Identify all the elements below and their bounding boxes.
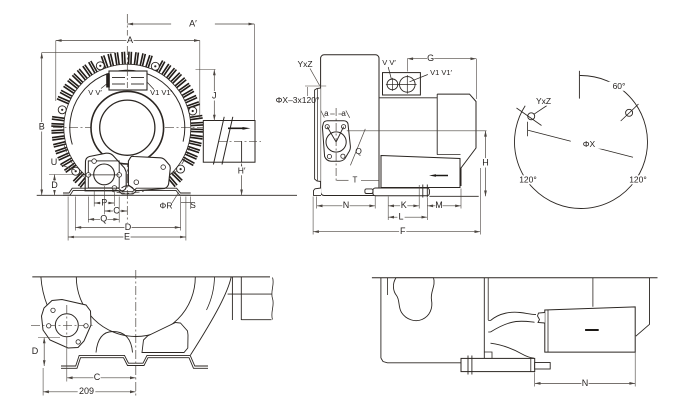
svg-text:U: U — [51, 157, 58, 167]
svg-text:V V′: V V′ — [88, 88, 102, 97]
svg-text:V V′: V V′ — [382, 58, 396, 67]
svg-text:ΦR: ΦR — [160, 201, 173, 211]
svg-text:F: F — [400, 226, 406, 236]
svg-text:H: H — [482, 157, 489, 167]
svg-text:A: A — [127, 35, 133, 45]
svg-text:B: B — [39, 121, 45, 131]
svg-text:120°: 120° — [519, 174, 537, 184]
svg-text:N: N — [582, 378, 589, 388]
svg-text:K: K — [401, 200, 407, 210]
svg-text:209: 209 — [79, 386, 94, 396]
svg-text:a: a — [324, 109, 329, 118]
svg-text:120°: 120° — [629, 174, 647, 184]
svg-text:D: D — [125, 222, 132, 232]
svg-text:S: S — [190, 200, 196, 210]
svg-text:T: T — [353, 175, 358, 184]
svg-text:C: C — [94, 372, 101, 382]
svg-text:ΦX: ΦX — [583, 139, 596, 149]
svg-text:G: G — [427, 53, 434, 63]
svg-text:H′: H′ — [238, 165, 246, 175]
svg-text:N: N — [343, 200, 350, 210]
svg-text:YxZ: YxZ — [297, 59, 312, 69]
svg-text:D: D — [51, 180, 58, 190]
svg-text:L: L — [398, 212, 403, 222]
svg-text:A′: A′ — [189, 18, 197, 28]
svg-text:Q: Q — [355, 146, 362, 156]
svg-text:D: D — [32, 346, 39, 356]
svg-text:M: M — [435, 200, 443, 210]
svg-text:60°: 60° — [613, 81, 626, 91]
svg-text:V1 V1′: V1 V1′ — [150, 88, 172, 97]
svg-text:Q: Q — [100, 214, 107, 224]
svg-text:E: E — [124, 231, 130, 241]
svg-text:ΦX–3x120°: ΦX–3x120° — [276, 95, 320, 105]
svg-text:a: a — [341, 109, 346, 118]
svg-text:V1 V1′: V1 V1′ — [430, 68, 452, 77]
svg-text:J: J — [212, 90, 217, 100]
svg-text:YxZ: YxZ — [536, 96, 551, 106]
